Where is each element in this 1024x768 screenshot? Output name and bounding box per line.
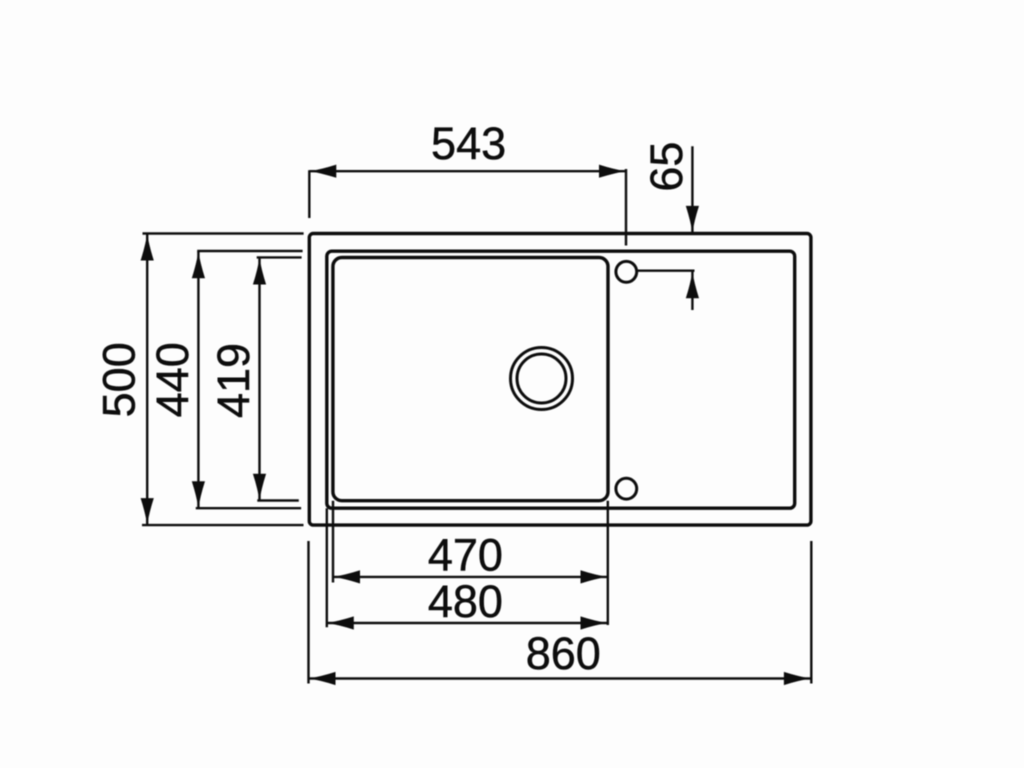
svg-text:470: 470: [428, 530, 503, 581]
svg-text:419: 419: [208, 343, 259, 418]
svg-text:440: 440: [147, 342, 198, 417]
svg-text:543: 543: [431, 118, 506, 169]
svg-text:860: 860: [526, 628, 601, 679]
svg-text:500: 500: [93, 342, 144, 417]
svg-text:480: 480: [428, 576, 503, 627]
svg-text:65: 65: [641, 142, 692, 192]
